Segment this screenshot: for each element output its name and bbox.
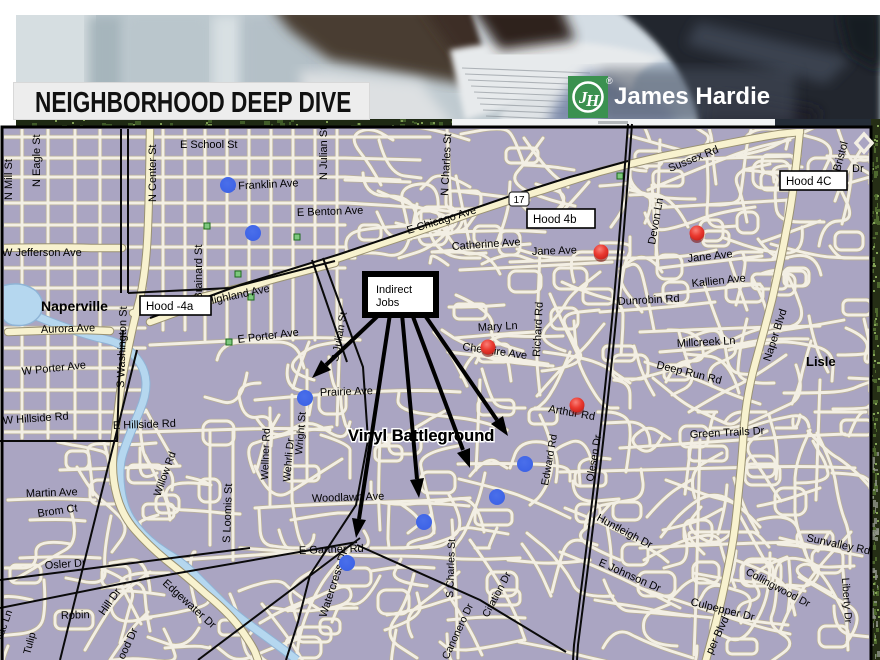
svg-text:N Center St: N Center St: [147, 145, 159, 202]
svg-text:E Benton Ave: E Benton Ave: [297, 205, 364, 219]
svg-text:E Gartner Rd: E Gartner Rd: [299, 543, 364, 557]
svg-text:N Eagle St: N Eagle St: [31, 134, 43, 187]
svg-text:Indirect: Indirect: [376, 284, 412, 296]
svg-text:Jane Ave: Jane Ave: [532, 244, 577, 258]
svg-text:S Loomis St: S Loomis St: [221, 483, 235, 543]
svg-text:Dr: Dr: [852, 163, 864, 175]
svg-text:Martin Ave: Martin Ave: [26, 486, 78, 500]
svg-text:Hood 4C: Hood 4C: [786, 176, 831, 188]
svg-text:S Charles St: S Charles St: [444, 539, 458, 598]
svg-text:Aurora Ave: Aurora Ave: [41, 322, 96, 336]
svg-text:E School St: E School St: [180, 139, 237, 151]
svg-text:N Julian St: N Julian St: [318, 127, 330, 180]
svg-text:Mary Ln: Mary Ln: [478, 320, 518, 334]
svg-text:W Jefferson Ave: W Jefferson Ave: [2, 247, 82, 259]
svg-text:Woodlawn Ave: Woodlawn Ave: [312, 490, 385, 505]
svg-text:Naperville: Naperville: [41, 298, 108, 314]
svg-text:Hood -4a: Hood -4a: [146, 301, 194, 313]
svg-text:Wellner Rd: Wellner Rd: [259, 428, 273, 480]
svg-text:Jobs: Jobs: [376, 297, 400, 309]
svg-text:Robin: Robin: [61, 609, 90, 622]
svg-text:N Mill St: N Mill St: [3, 159, 15, 200]
svg-text:E Hillside Rd: E Hillside Rd: [113, 418, 176, 432]
svg-text:17: 17: [513, 195, 525, 206]
svg-text:Prairie Ave: Prairie Ave: [320, 385, 373, 399]
svg-text:Lisle: Lisle: [806, 354, 836, 369]
svg-text:H: H: [585, 91, 600, 110]
svg-text:Hood 4b: Hood 4b: [533, 214, 576, 226]
